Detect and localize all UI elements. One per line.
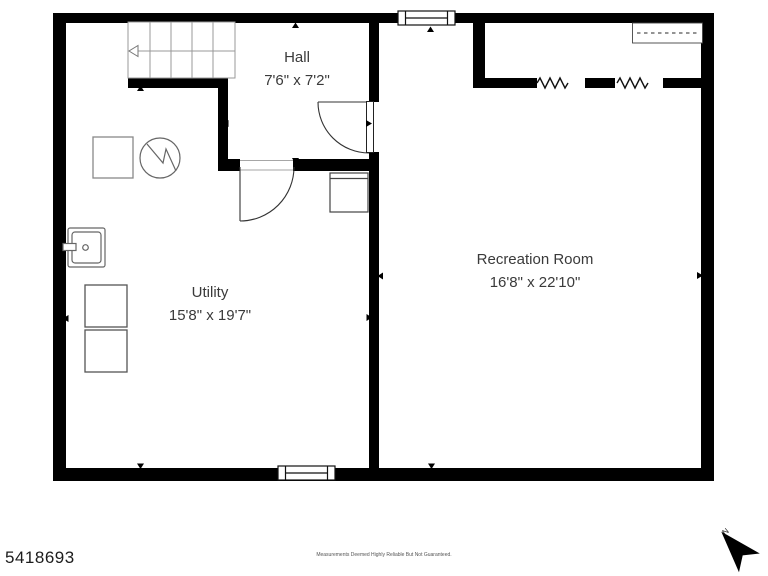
- washer-icon: [85, 285, 127, 372]
- water-heater-icon: [140, 138, 180, 178]
- room-label-utility: Utility 15'8" x 19'7": [130, 281, 290, 327]
- plan-symbols: N: [0, 0, 768, 576]
- appliance-icon: [330, 173, 368, 212]
- floor-plan: N Hall 7'6" x 7'2" Utility 15'8" x 19'7"…: [0, 0, 768, 576]
- room-dimensions: 15'8" x 19'7": [130, 304, 290, 327]
- closet-shelf-icon: [633, 23, 703, 43]
- disclaimer-text: Measurements Deemed Highly Reliable But …: [0, 552, 768, 558]
- room-label-recreation-room: Recreation Room 16'8" x 22'10": [440, 248, 630, 294]
- listing-id: 5418693: [5, 548, 75, 568]
- room-name: Utility: [130, 281, 290, 304]
- room-label-hall: Hall 7'6" x 7'2": [217, 46, 377, 92]
- dryer-icon: [93, 137, 133, 178]
- room-name: Recreation Room: [440, 248, 630, 271]
- sink-icon: [63, 228, 105, 267]
- room-dimensions: 7'6" x 7'2": [217, 69, 377, 92]
- wall-marker-icon: [63, 23, 704, 470]
- wall-break-zigzag-icon: [537, 78, 648, 88]
- north-arrow-icon: N: [711, 522, 760, 572]
- room-name: Hall: [217, 46, 377, 69]
- window-icon: [278, 466, 335, 480]
- door-swing-icon: [318, 102, 374, 154]
- door-swing-icon: [240, 161, 294, 222]
- room-dimensions: 16'8" x 22'10": [440, 271, 630, 294]
- window-icon: [398, 11, 455, 25]
- north-label: N: [720, 526, 730, 537]
